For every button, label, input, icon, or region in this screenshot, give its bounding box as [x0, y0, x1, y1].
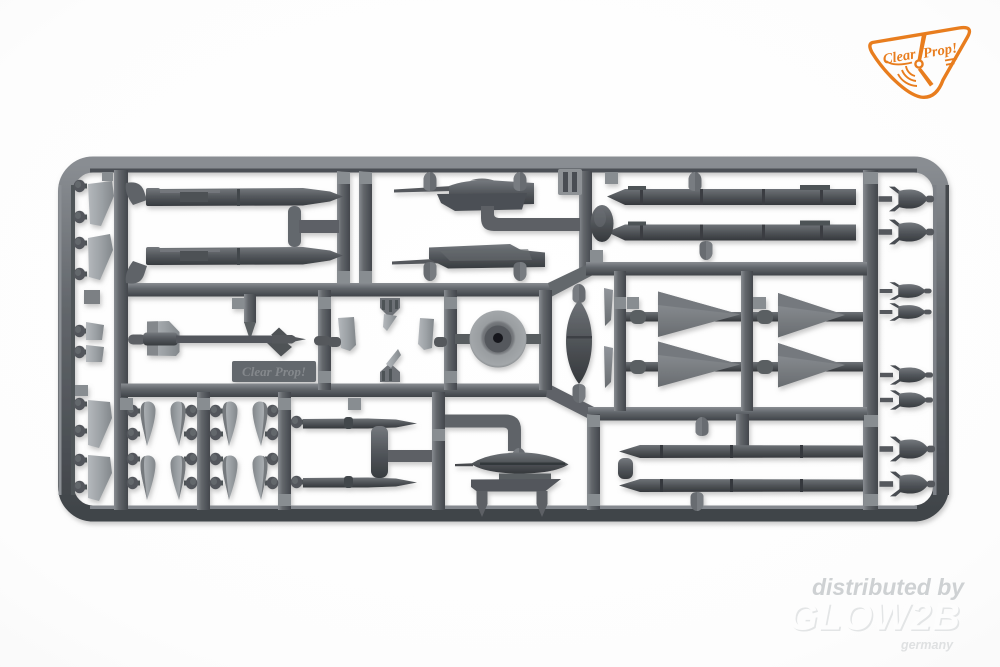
svg-text:GLOW2B: GLOW2B: [788, 597, 961, 639]
svg-text:germany: germany: [900, 638, 954, 652]
svg-text:Clear Prop!: Clear Prop!: [242, 364, 306, 379]
